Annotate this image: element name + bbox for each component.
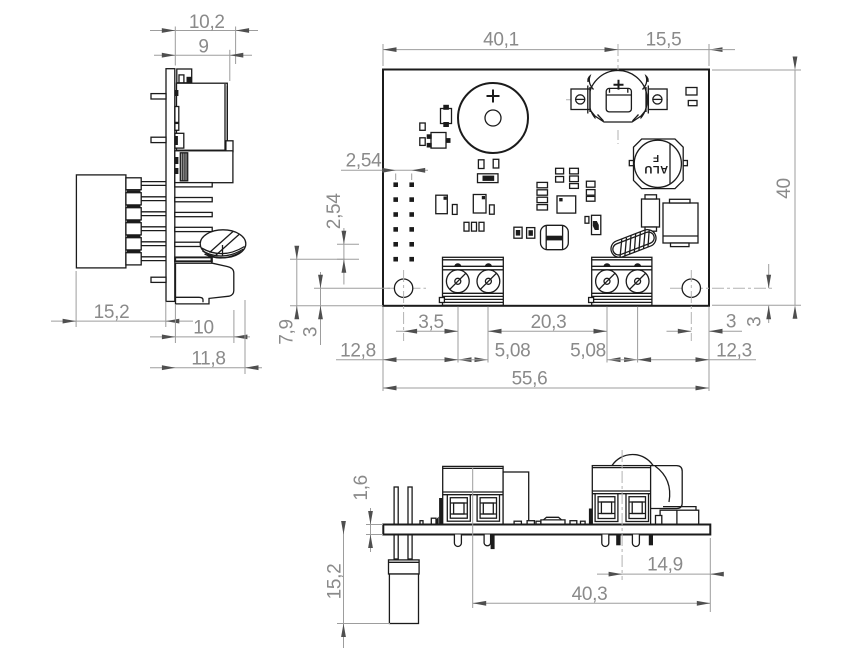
- svg-text:ALU: ALU: [644, 163, 668, 175]
- svg-text:1,6: 1,6: [351, 475, 372, 501]
- svg-text:3: 3: [745, 317, 766, 327]
- svg-text:3: 3: [726, 312, 736, 333]
- svg-text:12,3: 12,3: [716, 340, 752, 361]
- svg-text:F: F: [653, 152, 659, 163]
- svg-text:55,6: 55,6: [512, 369, 548, 390]
- svg-text:15,2: 15,2: [325, 564, 346, 600]
- svg-text:10,2: 10,2: [189, 12, 225, 33]
- svg-text:12,8: 12,8: [340, 340, 376, 361]
- svg-text:7,9: 7,9: [277, 319, 298, 345]
- svg-text:3: 3: [301, 327, 322, 337]
- svg-text:5,08: 5,08: [495, 340, 531, 361]
- svg-text:3,5: 3,5: [418, 312, 444, 333]
- svg-text:11,8: 11,8: [191, 349, 225, 370]
- svg-text:40,1: 40,1: [483, 29, 519, 50]
- svg-text:15,5: 15,5: [646, 29, 682, 50]
- svg-text:15,2: 15,2: [94, 302, 130, 323]
- svg-text:40,3: 40,3: [572, 584, 608, 605]
- svg-text:5,08: 5,08: [570, 340, 606, 361]
- svg-text:9: 9: [198, 37, 208, 58]
- svg-text:2,54: 2,54: [346, 151, 383, 172]
- svg-text:14,9: 14,9: [647, 554, 683, 575]
- svg-text:2,54: 2,54: [324, 193, 345, 230]
- svg-text:10: 10: [193, 318, 214, 339]
- svg-text:40: 40: [774, 178, 795, 199]
- svg-text:20,3: 20,3: [531, 312, 567, 333]
